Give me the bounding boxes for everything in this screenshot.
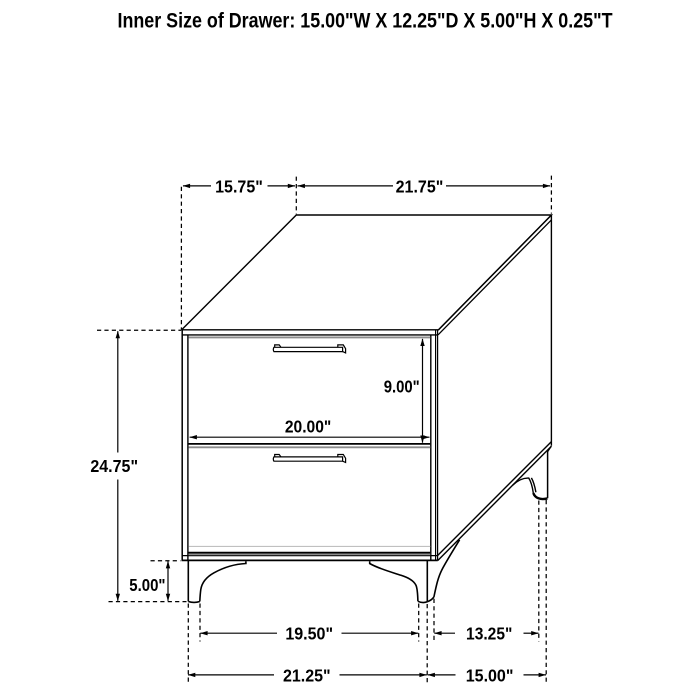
svg-text:Inner Size of Drawer: 15.00"W: Inner Size of Drawer: 15.00"W X 12.25"D … [118,9,613,32]
svg-text:21.75": 21.75" [396,176,444,196]
svg-text:19.50": 19.50" [285,624,333,644]
svg-text:24.75": 24.75" [90,456,138,476]
svg-text:20.00": 20.00" [285,417,331,437]
svg-text:9.00": 9.00" [384,376,420,396]
svg-text:5.00": 5.00" [129,575,165,595]
svg-text:15.00": 15.00" [466,665,514,685]
svg-text:15.75": 15.75" [215,176,263,196]
svg-text:21.25": 21.25" [283,665,331,685]
svg-text:13.25": 13.25" [466,624,512,644]
